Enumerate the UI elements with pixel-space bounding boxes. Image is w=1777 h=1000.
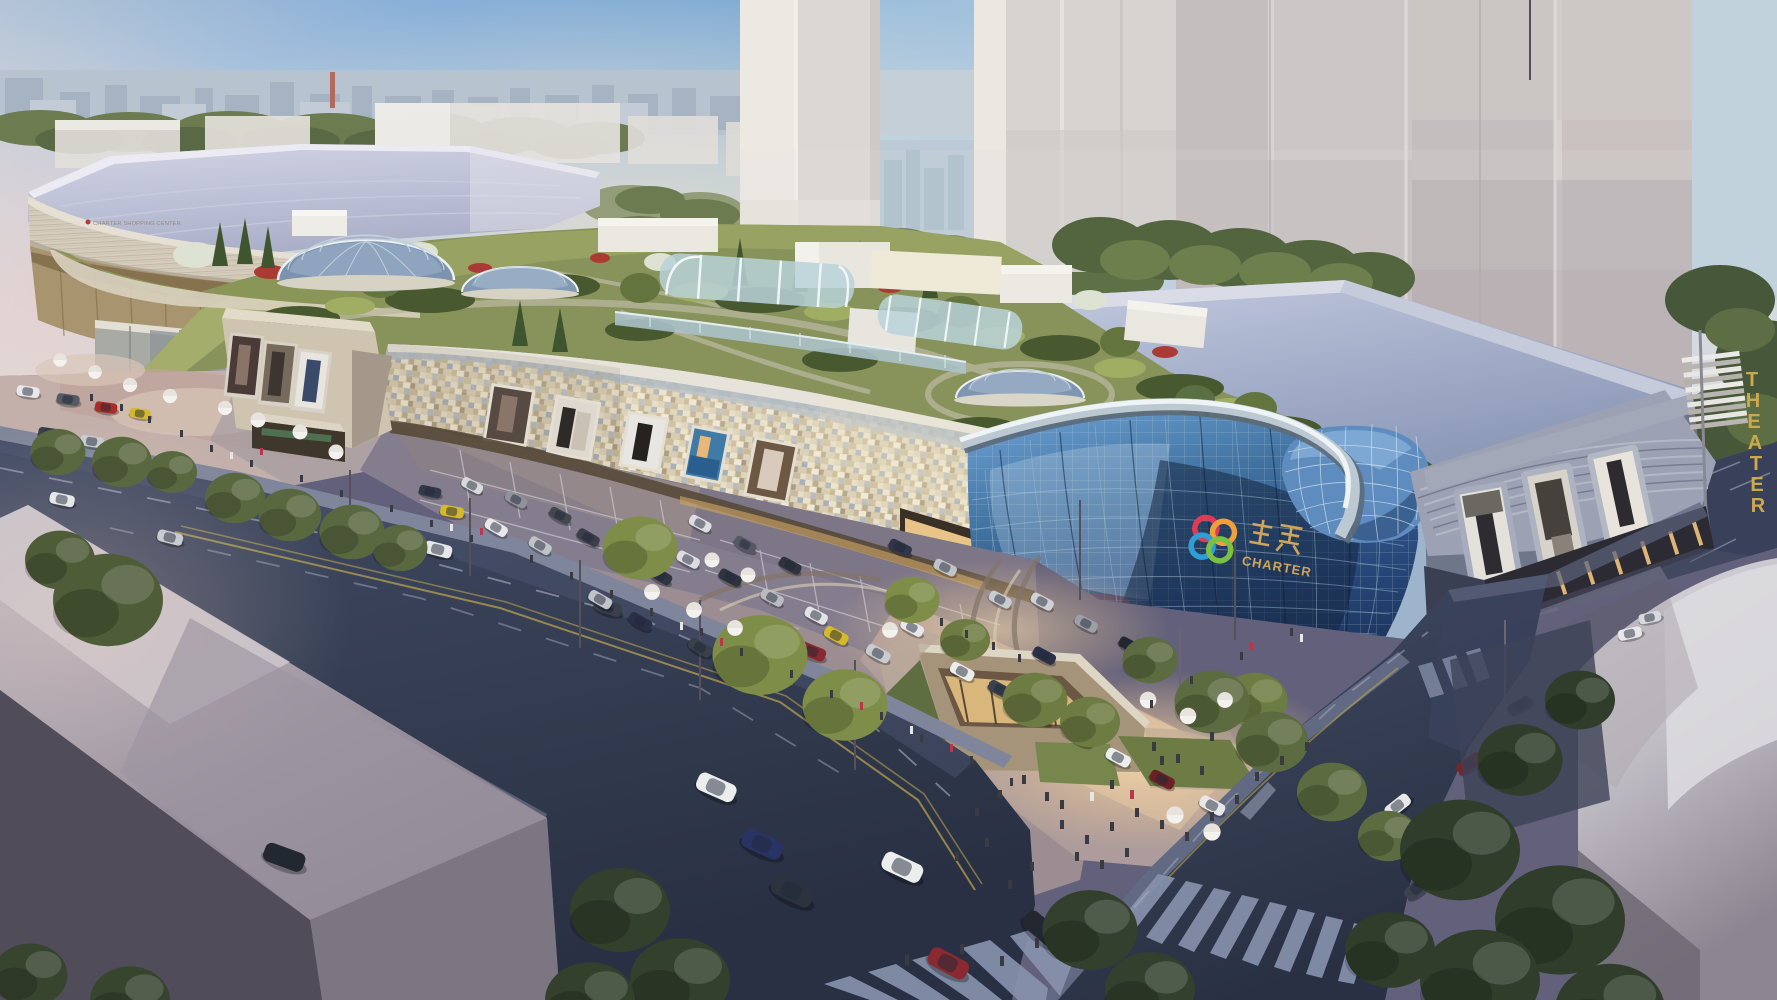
svg-text:T: T <box>1750 453 1762 475</box>
svg-text:H: H <box>1746 390 1760 412</box>
svg-text:E: E <box>1747 411 1760 433</box>
svg-text:A: A <box>1748 432 1762 454</box>
svg-text:E: E <box>1750 474 1763 496</box>
svg-text:R: R <box>1751 495 1766 517</box>
svg-text:T: T <box>1746 369 1758 391</box>
svg-text:CHARTER SHOPPING CENTER: CHARTER SHOPPING CENTER <box>93 221 181 227</box>
